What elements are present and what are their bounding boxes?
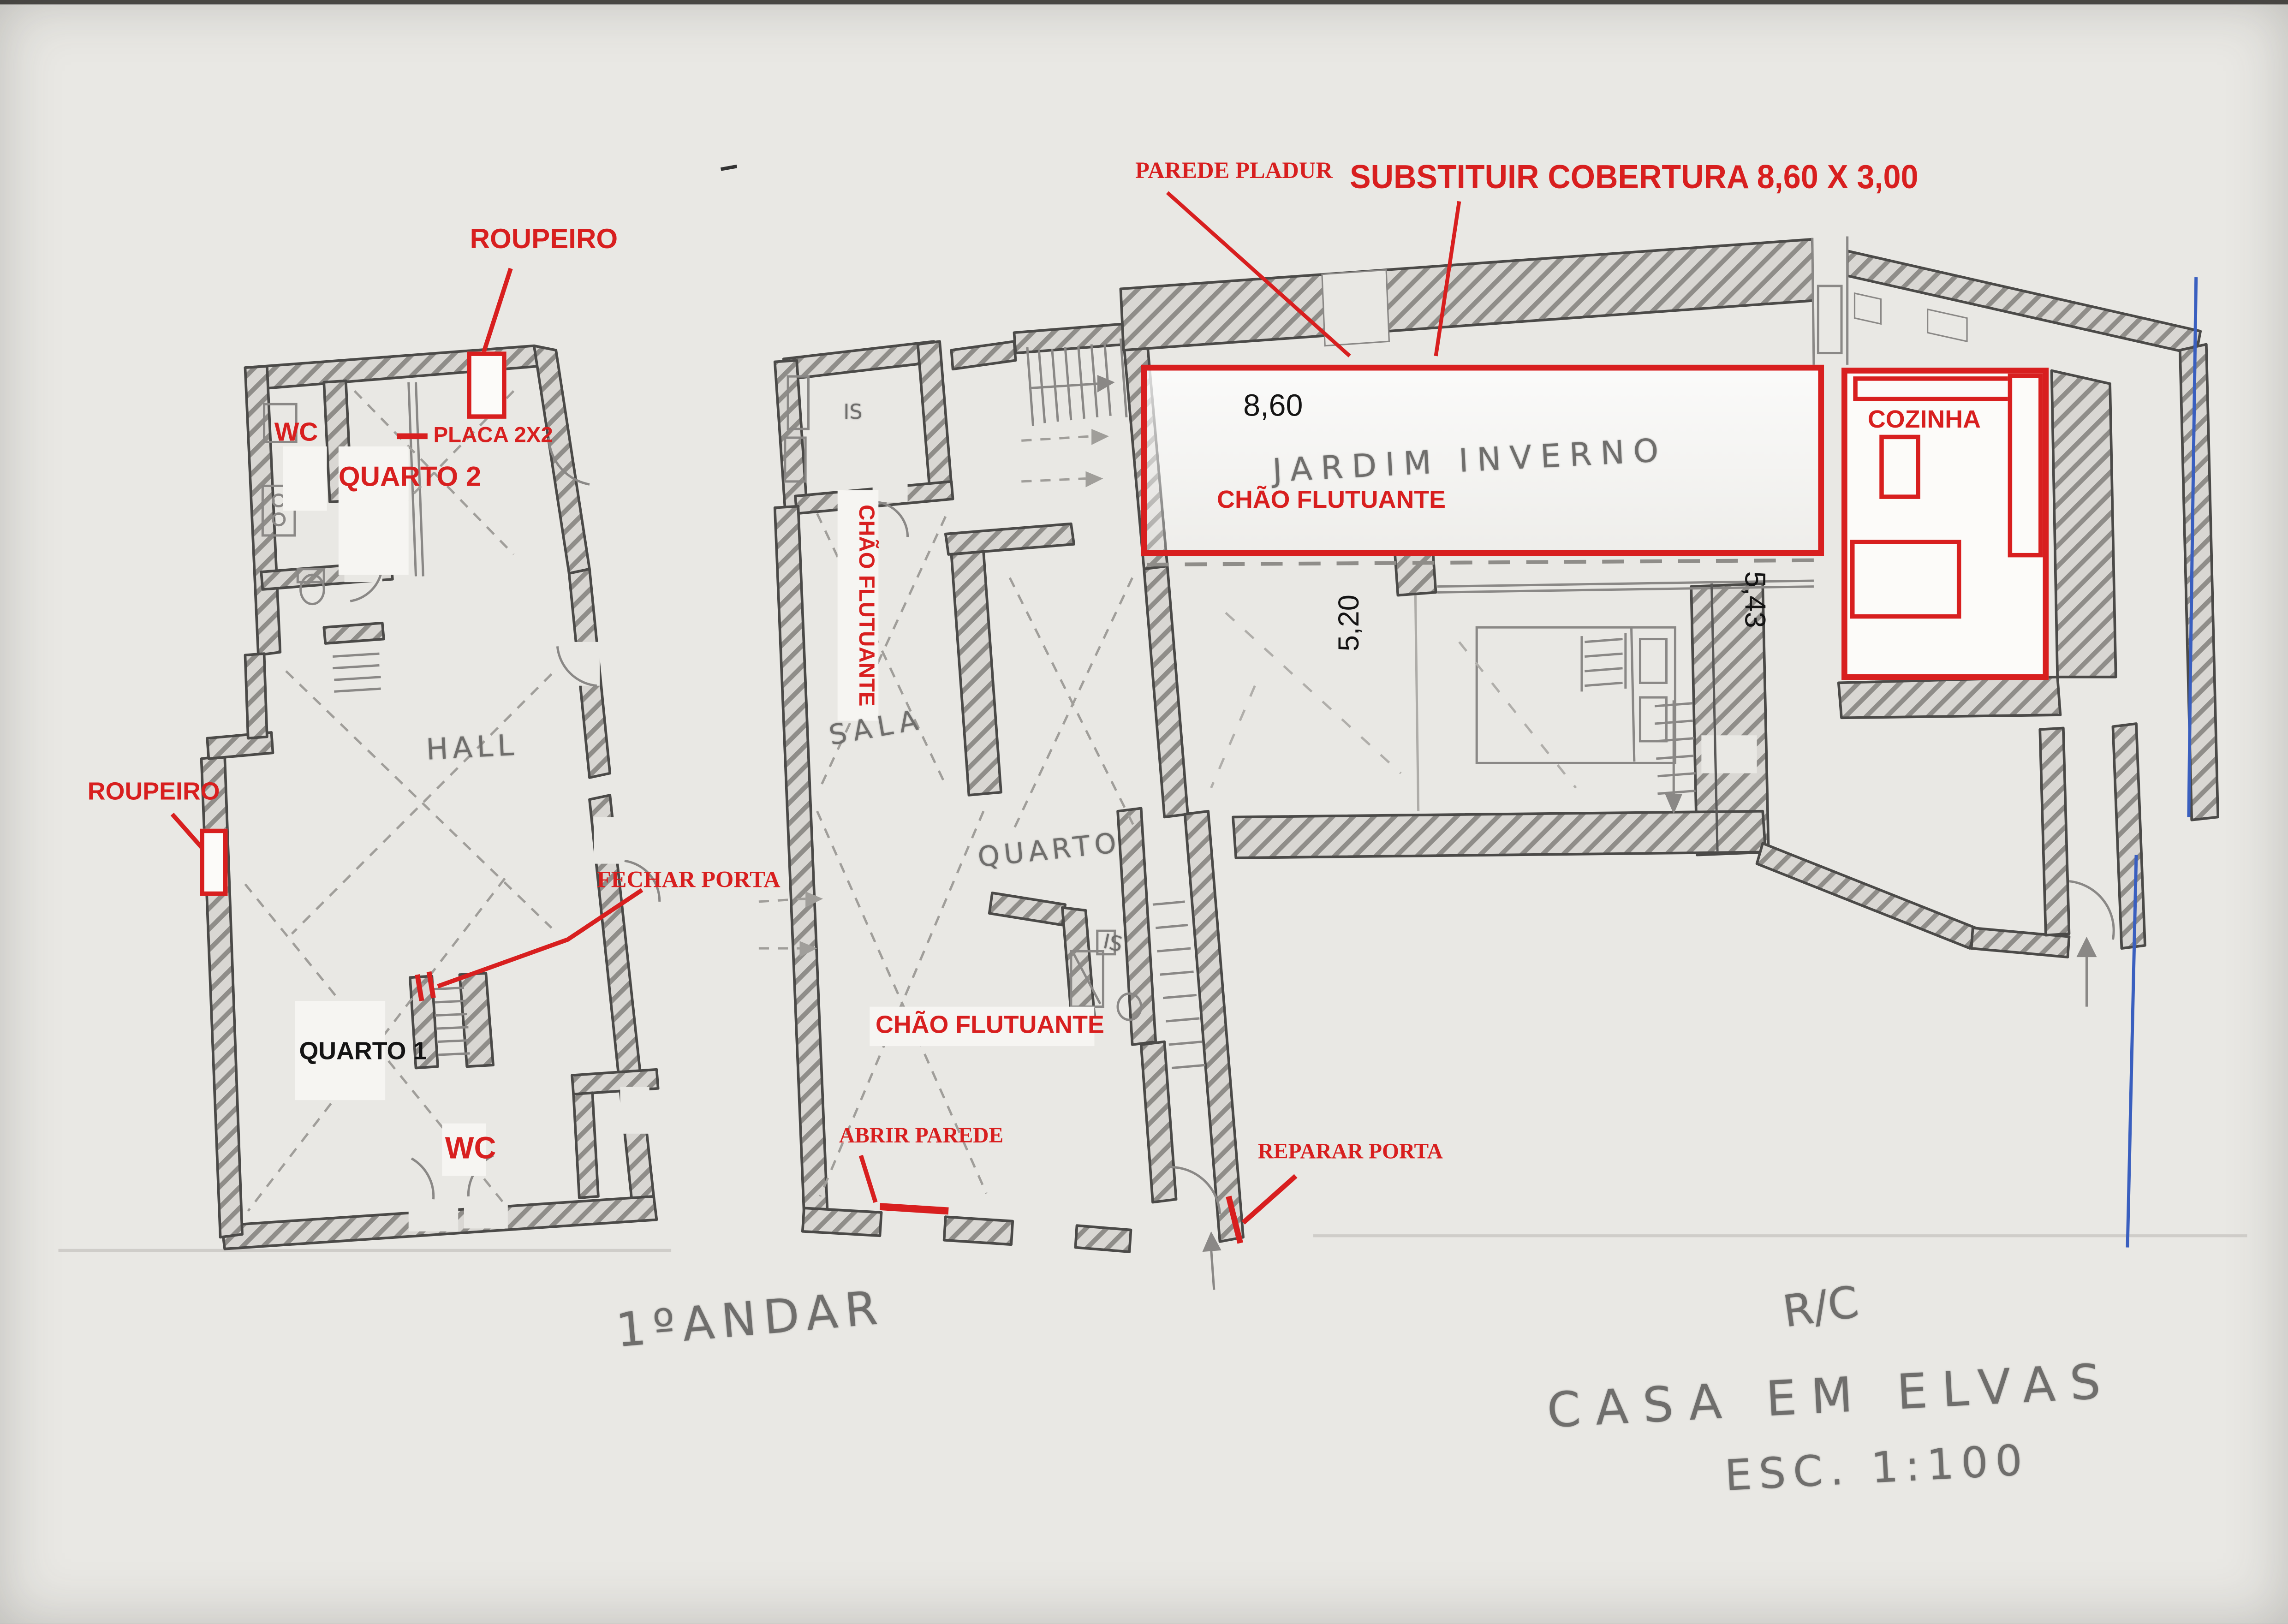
wc-lower-label: WC <box>445 1134 496 1164</box>
dim-5-20: 5,20 <box>1335 557 1373 689</box>
whiteout-patch <box>283 446 327 511</box>
chao-flutuante-corridor-label: CHÃO FLUTUANTE <box>839 482 877 730</box>
abrir-parede-mark <box>880 1207 948 1211</box>
chao-flutuante-jardim-label: CHÃO FLUTUANTE <box>1217 488 1446 512</box>
cozinha-counter-top <box>1853 376 2016 401</box>
placa-label: PLACA 2X2 <box>433 425 553 446</box>
dim-5-43: 5,43 <box>1731 534 1769 666</box>
ground-floor-annex-faint-dashes <box>1211 613 1576 788</box>
cozinha-counter-right <box>2008 374 2043 558</box>
substituir-cobertura-label: SUBSTITUIR COBERTURA 8,60 X 3,00 <box>1350 161 1919 194</box>
abrir-parede-label: ABRIR PAREDE <box>839 1126 1003 1148</box>
hall-label: HALL <box>425 730 518 764</box>
ground-floor-title: R/C <box>1781 1282 1862 1336</box>
quarto2-label: QUARTO 2 <box>339 464 482 492</box>
fechar-porta-label: FECHAR PORTA <box>597 869 781 893</box>
wc-upper-label: WC <box>274 419 318 445</box>
cozinha-label: COZINHA <box>1868 407 1981 432</box>
cozinha-counter-bottom <box>1850 540 1961 619</box>
reparar-porta-label: REPARAR PORTA <box>1258 1142 1443 1164</box>
roupeiro-left-label: ROUPEIRO <box>88 779 220 804</box>
parede-pladur-label: PAREDE PLADUR <box>1135 161 1333 184</box>
dim-8-60: 8,60 <box>1243 391 1303 422</box>
cozinha-island <box>1879 435 1920 499</box>
roupeiro-wardrobe-box-left <box>200 829 227 896</box>
quarto1-label: QUARTO 1 <box>299 1039 427 1064</box>
chao-flutuante-sala-label: CHÃO FLUTUANTE <box>876 1012 1104 1037</box>
reparar-porta-leader <box>1243 1176 1296 1223</box>
ground-floor-annex-walls <box>1120 239 2218 957</box>
abrir-parede-leader <box>861 1155 876 1202</box>
ground-floor-annex-dashed <box>1147 560 1814 565</box>
roupeiro-top-label: ROUPEIRO <box>470 226 618 254</box>
is-top-label: IS <box>843 403 862 423</box>
plan-sheet: ROUPEIRO WC QUARTO 2 PLACA 2X2 HALL ROUP… <box>0 0 2288 1624</box>
roupeiro-wardrobe-box-top <box>467 351 506 419</box>
